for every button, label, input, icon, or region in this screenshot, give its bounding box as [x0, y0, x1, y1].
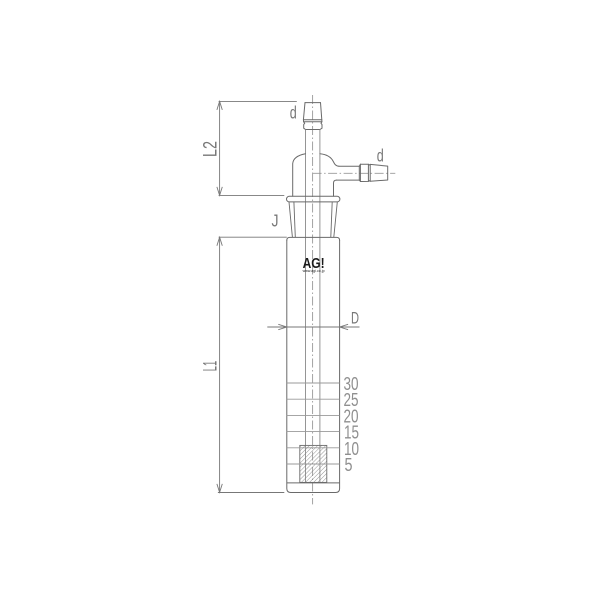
svg-text:D: D — [351, 309, 359, 328]
svg-text:d: d — [290, 102, 297, 122]
svg-text:L1: L1 — [200, 361, 222, 372]
svg-text:www.agi.co.jp: www.agi.co.jp — [303, 268, 326, 273]
svg-text:J: J — [272, 211, 279, 231]
svg-text:d: d — [377, 145, 384, 165]
svg-text:L2: L2 — [200, 141, 222, 157]
svg-text:5: 5 — [345, 454, 353, 475]
